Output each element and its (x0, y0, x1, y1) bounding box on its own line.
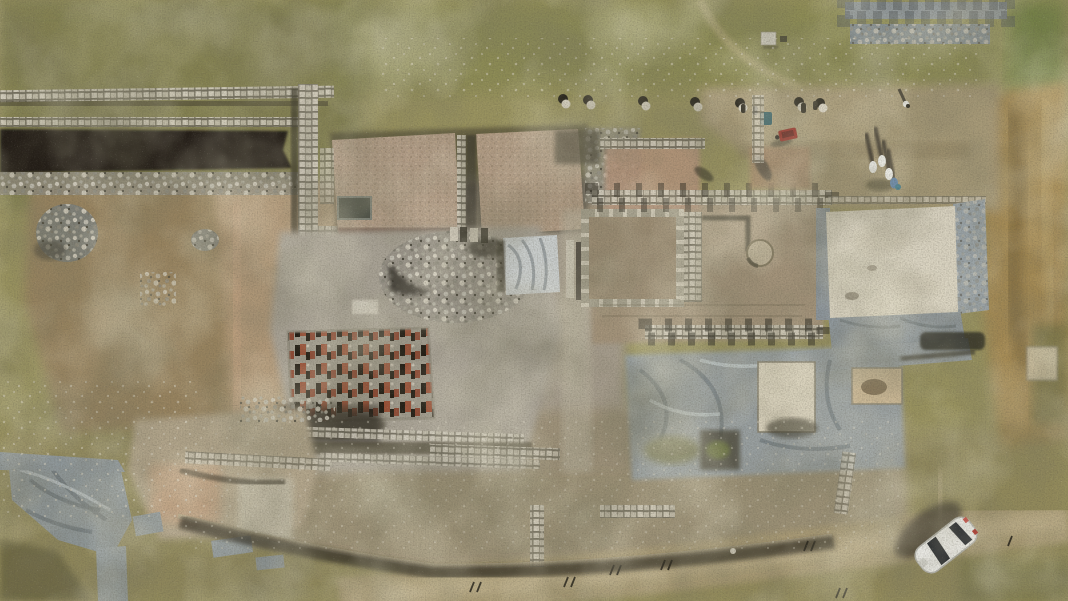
aerial-photo-canvas (0, 0, 1068, 601)
texture-overlays (0, 0, 1068, 601)
aerial-photo (0, 0, 1068, 601)
grain-light-overlay (0, 0, 1068, 601)
